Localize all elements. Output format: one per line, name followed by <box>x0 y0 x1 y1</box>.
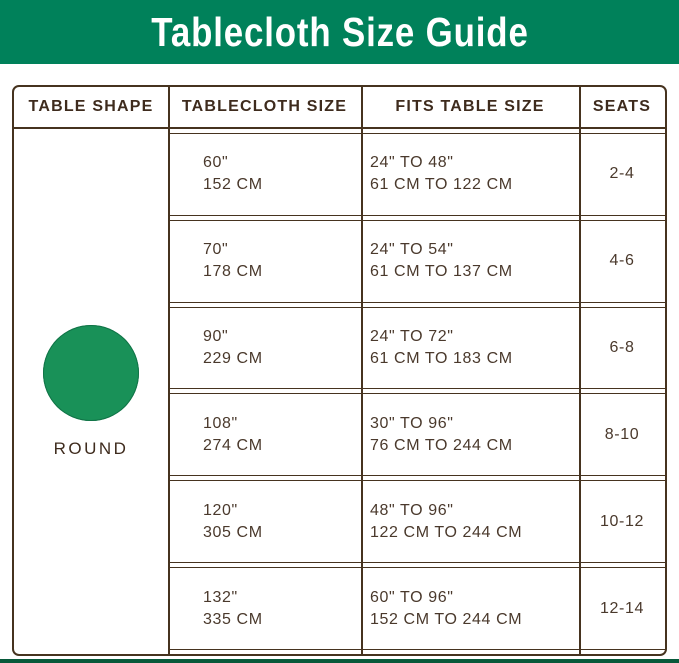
size-guide-table: TABLE SHAPE TABLECLOTH SIZE FITS TABLE S… <box>12 85 667 656</box>
shape-cell-round: ROUND <box>14 129 168 654</box>
seats-cell: 12-14 <box>579 598 665 620</box>
table-row: 108" 274 CM 30" TO 96" 76 CM TO 244 CM 8… <box>168 393 665 476</box>
table-row: 120" 305 CM 48" TO 96" 122 CM TO 244 CM … <box>168 480 665 563</box>
tablecloth-size-cell: 60" 152 CM <box>168 152 361 196</box>
fits-inches: 24" TO 48" <box>370 152 579 174</box>
fits-inches: 30" TO 96" <box>370 413 579 435</box>
table-row: 60" 152 CM 24" TO 48" 61 CM TO 122 CM 2-… <box>168 133 665 216</box>
seats-cell: 10-12 <box>579 511 665 533</box>
seats-cell: 4-6 <box>579 250 665 272</box>
fits-inches: 24" TO 72" <box>370 326 579 348</box>
header-table-shape: TABLE SHAPE <box>14 98 168 116</box>
round-circle-icon <box>43 325 139 421</box>
shape-label: ROUND <box>54 439 129 459</box>
footer-green-strip <box>0 659 679 663</box>
title-banner: Tablecloth Size Guide <box>0 0 679 64</box>
size-cm: 305 CM <box>203 522 361 544</box>
fits-size-cell: 24" TO 54" 61 CM TO 137 CM <box>361 239 579 283</box>
tablecloth-size-cell: 70" 178 CM <box>168 239 361 283</box>
fits-cm: 61 CM TO 183 CM <box>370 348 579 370</box>
fits-size-cell: 30" TO 96" 76 CM TO 244 CM <box>361 413 579 457</box>
size-inches: 90" <box>203 326 361 348</box>
size-cm: 274 CM <box>203 435 361 457</box>
size-inches: 60" <box>203 152 361 174</box>
fits-inches: 24" TO 54" <box>370 239 579 261</box>
size-inches: 120" <box>203 500 361 522</box>
fits-inches: 60" TO 96" <box>370 587 579 609</box>
table-row: 90" 229 CM 24" TO 72" 61 CM TO 183 CM 6-… <box>168 307 665 390</box>
header-fits-table-size: FITS TABLE SIZE <box>361 98 579 116</box>
column-divider <box>579 87 581 654</box>
size-cm: 229 CM <box>203 348 361 370</box>
table-header-row: TABLE SHAPE TABLECLOTH SIZE FITS TABLE S… <box>14 87 665 129</box>
size-inches: 132" <box>203 587 361 609</box>
size-cm: 178 CM <box>203 261 361 283</box>
seats-cell: 8-10 <box>579 424 665 446</box>
fits-size-cell: 24" TO 72" 61 CM TO 183 CM <box>361 326 579 370</box>
fits-cm: 76 CM TO 244 CM <box>370 435 579 457</box>
size-cm: 152 CM <box>203 174 361 196</box>
size-inches: 70" <box>203 239 361 261</box>
table-body: ROUND 60" 152 CM 24" TO 48" 61 CM TO 122… <box>14 129 665 654</box>
column-divider <box>168 87 170 654</box>
header-seats: SEATS <box>579 98 665 116</box>
tablecloth-size-cell: 108" 274 CM <box>168 413 361 457</box>
seats-cell: 6-8 <box>579 337 665 359</box>
table-row: 132" 335 CM 60" TO 96" 152 CM TO 244 CM … <box>168 567 665 650</box>
header-tablecloth-size: TABLECLOTH SIZE <box>168 98 361 116</box>
table-row: 70" 178 CM 24" TO 54" 61 CM TO 137 CM 4-… <box>168 220 665 303</box>
size-cm: 335 CM <box>203 609 361 631</box>
fits-cm: 61 CM TO 122 CM <box>370 174 579 196</box>
rows-area: 60" 152 CM 24" TO 48" 61 CM TO 122 CM 2-… <box>168 129 665 654</box>
seats-cell: 2-4 <box>579 163 665 185</box>
fits-cm: 152 CM TO 244 CM <box>370 609 579 631</box>
fits-size-cell: 60" TO 96" 152 CM TO 244 CM <box>361 587 579 631</box>
column-divider <box>361 87 363 654</box>
size-inches: 108" <box>203 413 361 435</box>
fits-inches: 48" TO 96" <box>370 500 579 522</box>
fits-size-cell: 24" TO 48" 61 CM TO 122 CM <box>361 152 579 196</box>
page-title: Tablecloth Size Guide <box>151 9 528 56</box>
tablecloth-size-cell: 120" 305 CM <box>168 500 361 544</box>
tablecloth-size-cell: 132" 335 CM <box>168 587 361 631</box>
fits-cm: 61 CM TO 137 CM <box>370 261 579 283</box>
fits-size-cell: 48" TO 96" 122 CM TO 244 CM <box>361 500 579 544</box>
fits-cm: 122 CM TO 244 CM <box>370 522 579 544</box>
tablecloth-size-cell: 90" 229 CM <box>168 326 361 370</box>
